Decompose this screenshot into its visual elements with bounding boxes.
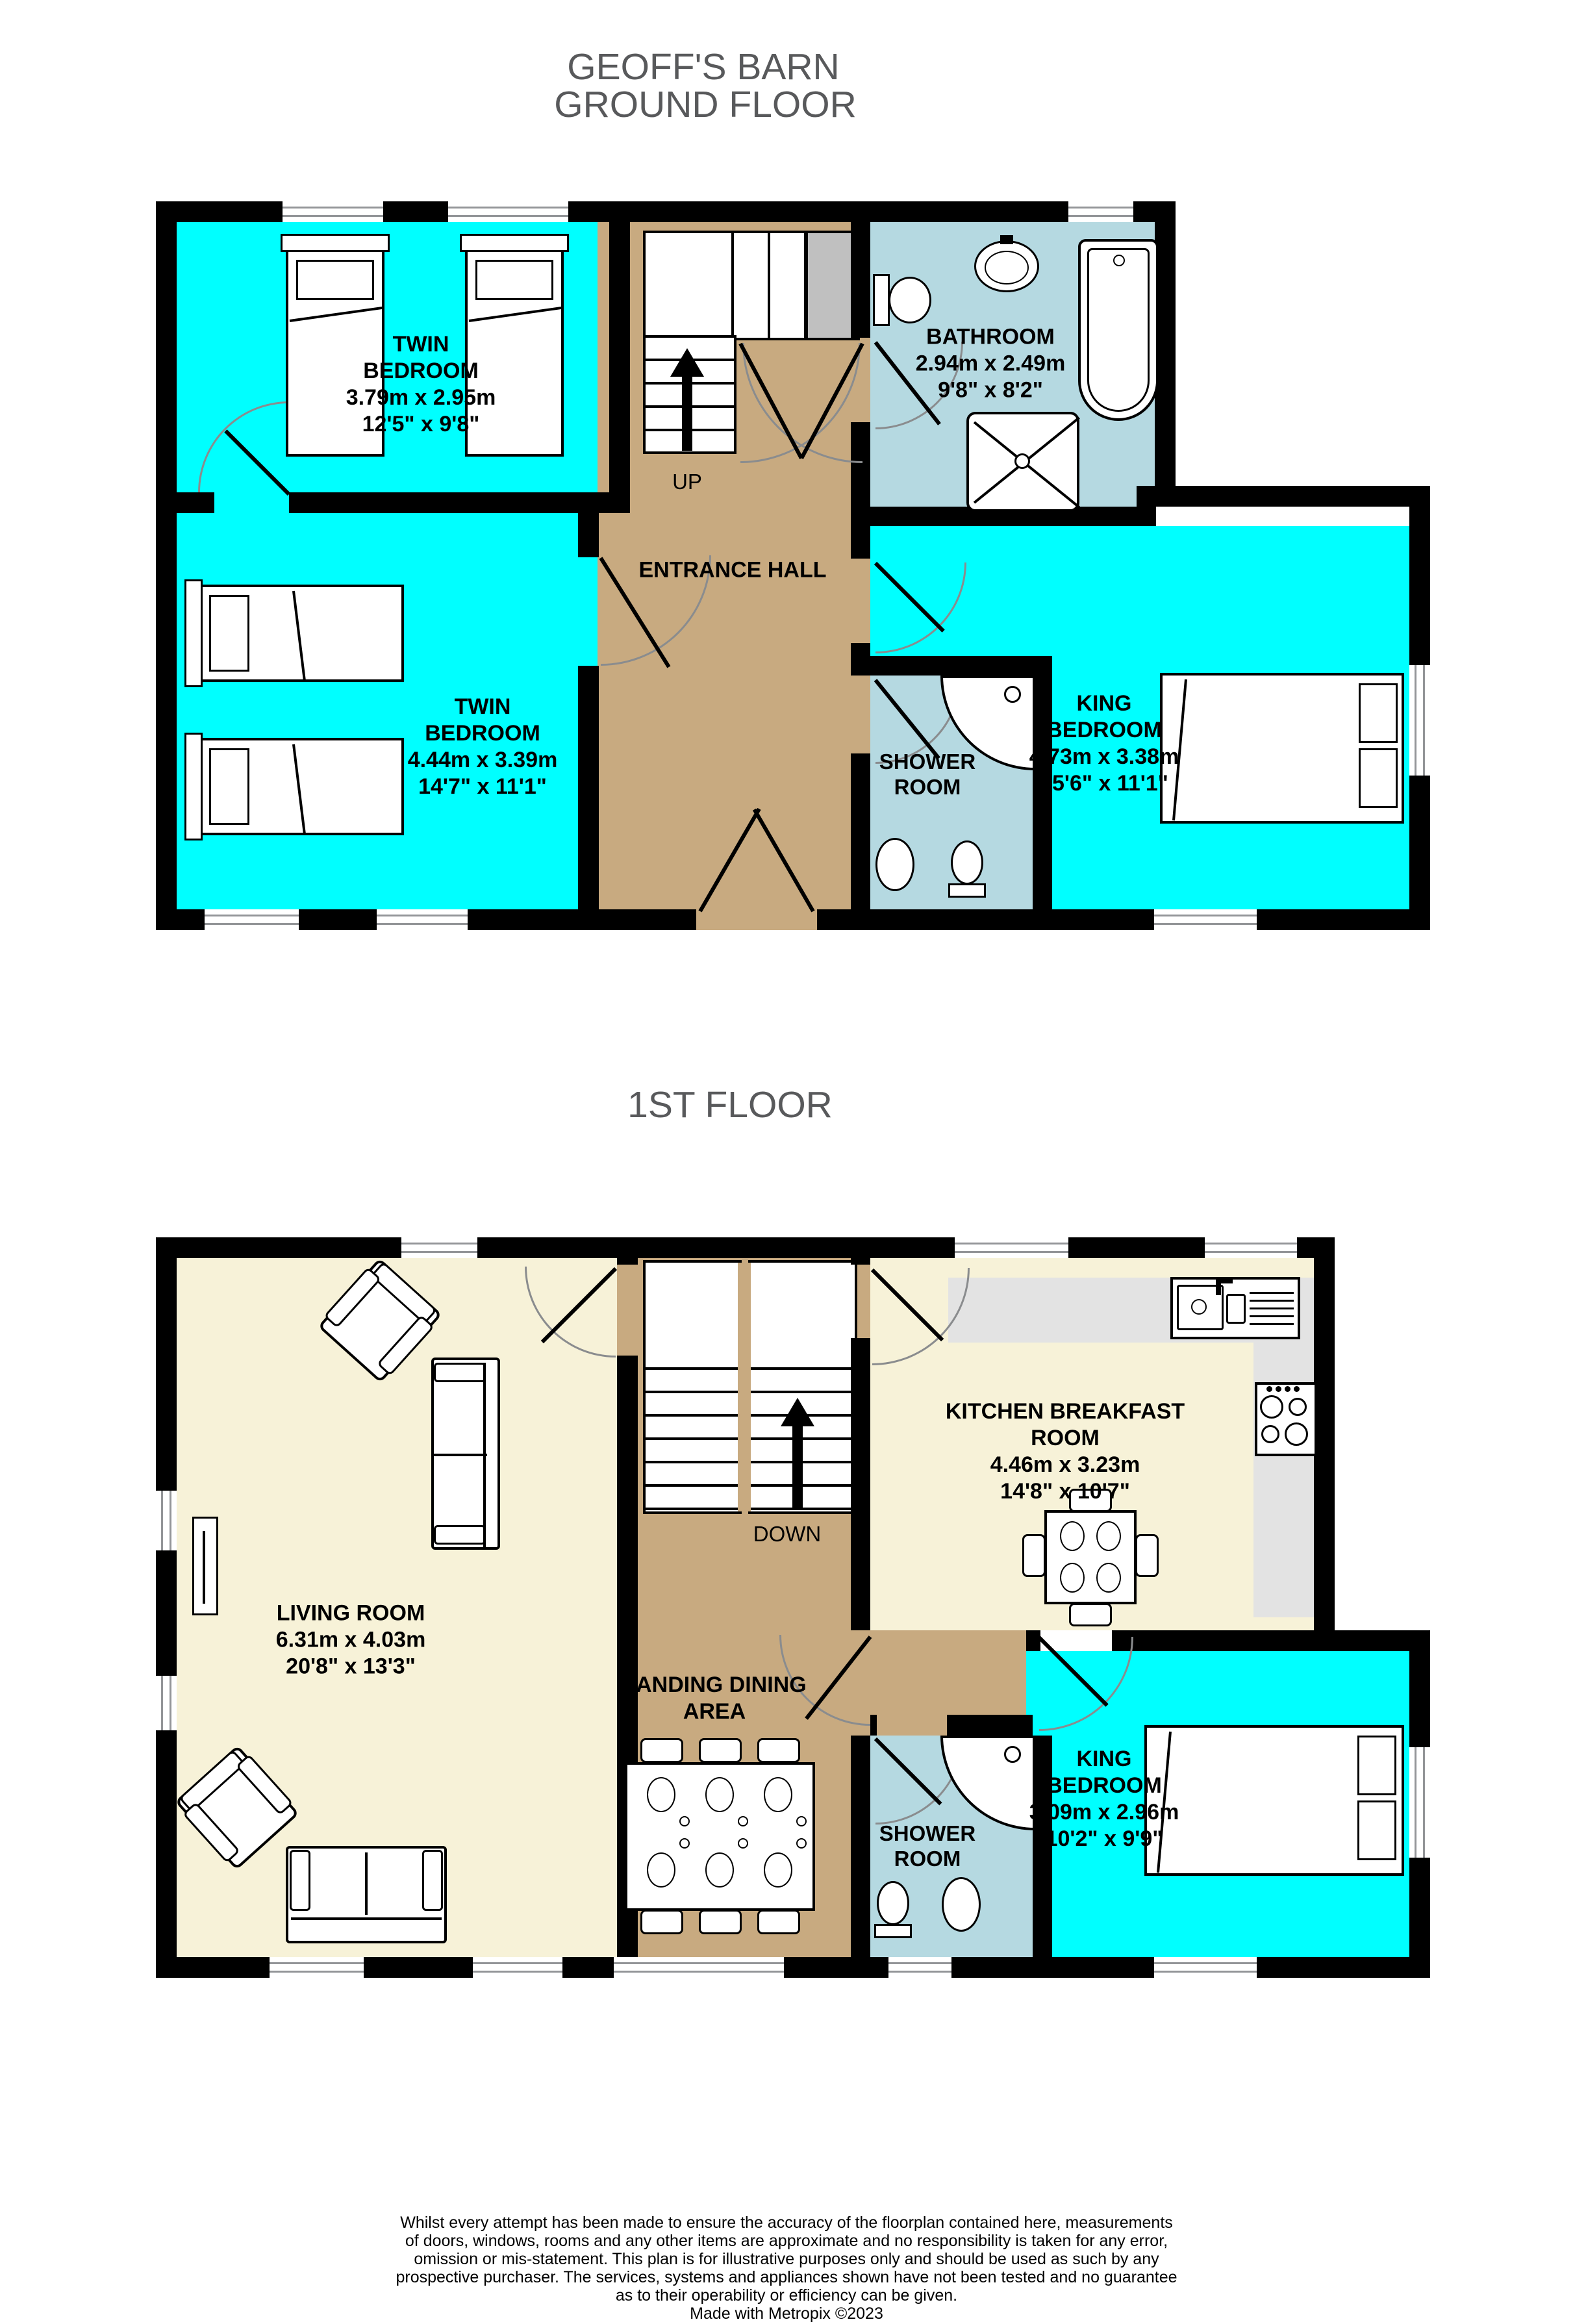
window <box>401 1237 477 1258</box>
place-setting-icon <box>1060 1563 1085 1593</box>
bed-pillow <box>1359 683 1398 743</box>
first-floor-title: 1ST FLOOR <box>627 1083 833 1126</box>
disclaimer-line: Whilst every attempt has been made to en… <box>400 2214 1173 2232</box>
wall <box>156 1237 177 1978</box>
wall <box>609 221 630 513</box>
stairs-upper-treads <box>731 231 811 340</box>
sink-icon <box>942 1877 981 1932</box>
bed-pillow <box>296 260 374 300</box>
window <box>377 909 468 930</box>
toilet-cistern <box>874 1924 912 1938</box>
sofa-arm <box>434 1525 486 1545</box>
chair-icon <box>640 1738 683 1763</box>
wall <box>851 221 870 338</box>
bathtub-inner <box>1087 248 1150 412</box>
room-name: TWIN BEDROOM <box>398 694 567 747</box>
sofa-back-line <box>291 1917 442 1920</box>
window <box>1409 1747 1430 1858</box>
window <box>955 1237 1068 1258</box>
wall <box>1137 486 1430 507</box>
toilet-cistern <box>873 274 890 326</box>
bed-pillow <box>209 595 249 672</box>
bed-pillow <box>1357 1736 1396 1795</box>
wall <box>851 753 870 930</box>
room-dim-metric: 4.44m x 3.39m <box>398 747 567 774</box>
room-label-twin-bedroom-1: TWIN BEDROOM 3.79m x 2.95m 12'5" x 9'8" <box>336 331 505 438</box>
place-setting-icon <box>1096 1521 1121 1551</box>
bed-headboard <box>281 234 390 252</box>
window <box>1154 1957 1257 1978</box>
wall <box>870 656 1033 676</box>
place-setting-icon <box>764 1852 792 1888</box>
wall <box>156 492 214 513</box>
burner-icon <box>1285 1422 1308 1446</box>
glass-icon <box>679 1816 690 1826</box>
stairs-treads-left <box>643 1367 742 1514</box>
cooker-knob <box>1266 1386 1272 1392</box>
toilet-cistern <box>948 883 986 898</box>
bed-pillow <box>475 260 553 300</box>
place-setting-icon <box>1096 1563 1121 1593</box>
disclaimer-line: as to their operability or efficiency ca… <box>616 2286 957 2305</box>
disclaimer-line: of doors, windows, rooms and any other i… <box>405 2232 1168 2250</box>
wall <box>851 1736 870 1957</box>
window <box>448 201 568 222</box>
room-name: TWIN BEDROOM <box>336 331 505 385</box>
chair-icon <box>757 1910 800 1934</box>
window <box>473 1957 562 1978</box>
shower-drain <box>1004 686 1021 703</box>
wall <box>578 666 599 930</box>
place-setting-icon <box>705 1852 734 1888</box>
place-setting-icon <box>705 1777 734 1812</box>
glass-icon <box>796 1838 807 1849</box>
sink-drain <box>1191 1299 1207 1315</box>
wall <box>1112 1630 1430 1651</box>
room-name: KING BEDROOM <box>1026 690 1182 744</box>
stairs-upper-left <box>643 1260 742 1370</box>
wall <box>851 1237 870 1265</box>
sink-tap-icon <box>1000 235 1013 244</box>
window <box>205 909 299 930</box>
bed-headboard <box>460 234 569 252</box>
wall <box>156 201 177 930</box>
room-label-king-bedroom-1f: KING BEDROOM 3.09m x 2.96m 10'2" x 9'9" <box>1026 1746 1182 1852</box>
room-label-king-bedroom-gf: KING BEDROOM 4.73m x 3.38m 15'6" x 11'1" <box>1026 690 1182 797</box>
room-label-bathroom: BATHROOM 2.94m x 2.49m 9'8" x 8'2" <box>916 324 1066 404</box>
room-name: KITCHEN BREAKFAST ROOM <box>942 1398 1189 1452</box>
wall <box>851 1338 870 1630</box>
room-dim-metric: 4.46m x 3.23m <box>942 1452 1189 1478</box>
room-dim-metric: 6.31m x 4.03m <box>276 1627 426 1654</box>
glass-icon <box>738 1838 748 1849</box>
burner-icon <box>1260 1395 1283 1419</box>
sink-bowl <box>985 251 1029 284</box>
room-dim-imperial: 14'7" x 11'1" <box>398 774 567 800</box>
stairs-down-arrow-icon <box>781 1398 814 1426</box>
window <box>156 1676 177 1730</box>
room-label-kitchen-breakfast: KITCHEN BREAKFAST ROOM 4.46m x 3.23m 14'… <box>942 1398 1189 1505</box>
window <box>888 1957 951 1978</box>
fireplace-icon <box>192 1517 218 1615</box>
shower-drain <box>1004 1746 1021 1763</box>
burner-icon <box>1261 1425 1279 1443</box>
fireplace-line <box>203 1531 205 1604</box>
glass-icon <box>679 1838 690 1849</box>
room-dim-metric: 3.09m x 2.96m <box>1026 1799 1182 1826</box>
room-dim-imperial: 9'8" x 8'2" <box>916 377 1066 404</box>
wall <box>947 1715 1033 1736</box>
room-dim-metric: 2.94m x 2.49m <box>916 351 1066 377</box>
window <box>614 1957 784 1978</box>
place-setting-icon <box>647 1852 675 1888</box>
room-dim-imperial: 10'2" x 9'9" <box>1026 1826 1182 1852</box>
room-dim-metric: 4.73m x 3.38m <box>1026 744 1182 770</box>
disclaimer-line: prospective purchaser. The services, sys… <box>396 2268 1177 2286</box>
wall <box>870 1715 877 1736</box>
wall <box>1026 1630 1040 1651</box>
room-label-entrance-hall: ENTRANCE HALL <box>639 557 827 584</box>
burner-icon <box>1289 1398 1307 1416</box>
chair-icon <box>1022 1534 1046 1577</box>
room-name: SHOWER ROOM <box>871 749 985 800</box>
room-name: SHOWER ROOM <box>871 1821 985 1871</box>
window <box>283 201 383 222</box>
room-label-landing-dining: LANDING DINING AREA <box>617 1672 812 1725</box>
window <box>1205 1237 1297 1258</box>
credit-line: Made with Metropix ©2023 <box>690 2305 883 2323</box>
chair-icon <box>1069 1603 1112 1626</box>
sink-half-bowl <box>1226 1294 1246 1324</box>
place-setting-icon <box>764 1777 792 1812</box>
bed-pillow <box>1359 748 1398 808</box>
room-name: KING BEDROOM <box>1026 1746 1182 1799</box>
stairs-down-label: DOWN <box>753 1522 821 1547</box>
stairs-up-arrow-icon <box>670 348 704 377</box>
toilet-icon <box>877 1881 909 1925</box>
chair-icon <box>699 1910 742 1934</box>
stairs-upper-right <box>748 1260 857 1370</box>
sofa-cushion-line <box>434 1454 487 1456</box>
wall <box>156 1237 1335 1258</box>
chair-icon <box>1135 1534 1159 1577</box>
plan-title-line2: GROUND FLOOR <box>554 83 857 126</box>
room-name: ENTRANCE HALL <box>639 557 827 584</box>
kitchen-table-icon <box>1044 1510 1137 1604</box>
plan-title-line1: GEOFF'S BARN <box>567 45 839 88</box>
cooker-knob <box>1285 1386 1290 1392</box>
room-label-shower-room-gf: SHOWER ROOM <box>871 749 985 800</box>
stairs-down-arrow-stem <box>792 1425 803 1508</box>
room-name: BATHROOM <box>916 324 1066 351</box>
sofa-cushion-line <box>365 1852 368 1915</box>
chair-icon <box>640 1910 683 1934</box>
tap-icon <box>1216 1278 1233 1283</box>
chair-icon <box>757 1738 800 1763</box>
stairs-up-label: UP <box>672 470 702 494</box>
wall <box>851 643 870 676</box>
toilet-icon <box>888 277 931 323</box>
toilet-icon <box>951 840 983 885</box>
sofa-arm <box>434 1363 486 1382</box>
window <box>270 1957 364 1978</box>
place-setting-icon <box>1060 1521 1085 1551</box>
room-name: LIVING ROOM <box>276 1600 426 1627</box>
sofa-arm <box>422 1850 443 1911</box>
stairs-divider <box>738 1263 751 1511</box>
room-dim-imperial: 14'8" x 10'7" <box>942 1478 1189 1505</box>
cooker-knob <box>1294 1386 1300 1392</box>
bed-headboard <box>184 579 203 687</box>
cooker-icon <box>1255 1382 1317 1456</box>
shower-drain <box>1014 453 1030 469</box>
sink-drainer <box>1250 1286 1294 1329</box>
place-setting-icon <box>647 1777 675 1812</box>
room-label-shower-room-1f: SHOWER ROOM <box>871 1821 985 1871</box>
window <box>156 1491 177 1550</box>
room-label-twin-bedroom-2: TWIN BEDROOM 4.44m x 3.39m 14'7" x 11'1" <box>398 694 567 800</box>
sofa-arm <box>290 1850 310 1911</box>
room-name: LANDING DINING AREA <box>617 1672 812 1725</box>
front-door-opening <box>696 909 817 930</box>
sofa-back-line <box>483 1363 486 1547</box>
wall <box>578 492 599 557</box>
window <box>1154 909 1257 930</box>
stairs-up-arrow-stem <box>682 375 692 451</box>
room-dim-metric: 3.79m x 2.95m <box>336 385 505 411</box>
sink-icon <box>875 838 914 891</box>
room-label-living-room: LIVING ROOM 6.31m x 4.03m 20'8" x 13'3" <box>276 1600 426 1680</box>
glass-icon <box>738 1816 748 1826</box>
window <box>1409 665 1430 776</box>
bed-pillow <box>1357 1800 1396 1860</box>
bed-pillow <box>209 748 249 825</box>
room-dim-imperial: 12'5" x 9'8" <box>336 411 505 438</box>
cooker-knob <box>1276 1386 1281 1392</box>
room-dim-imperial: 15'6" x 11'1" <box>1026 770 1182 797</box>
disclaimer-line: omission or mis-statement. This plan is … <box>414 2250 1159 2268</box>
chair-icon <box>699 1738 742 1763</box>
glass-icon <box>796 1816 807 1826</box>
wall <box>617 1237 638 1265</box>
window <box>1068 201 1133 222</box>
bathtub-tap-icon <box>1113 255 1125 266</box>
stairs-treads-right <box>748 1367 857 1514</box>
bed-headboard <box>184 733 203 840</box>
room-dim-imperial: 20'8" x 13'3" <box>276 1654 426 1680</box>
stairs-landing <box>643 231 736 340</box>
